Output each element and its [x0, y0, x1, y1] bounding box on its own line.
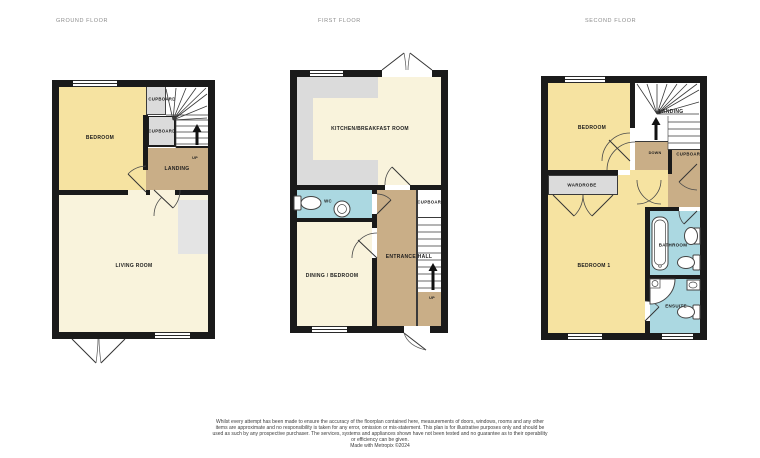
wall	[700, 76, 707, 340]
wall	[52, 332, 215, 339]
ground-floor-title: GROUND FLOOR	[56, 18, 108, 24]
wall	[175, 190, 208, 195]
wall	[645, 275, 700, 279]
wall	[208, 80, 215, 339]
wall	[297, 218, 372, 222]
ground-up-label: UP	[192, 156, 198, 160]
window	[565, 76, 605, 83]
second-stairs-treads	[668, 83, 700, 150]
second-floor-title: SECOND FLOOR	[585, 18, 636, 24]
wall	[372, 214, 377, 228]
french-doors	[72, 339, 125, 363]
entrance-door	[404, 333, 426, 350]
second-down-area	[635, 142, 668, 170]
first-floor-title: FIRST FLOOR	[318, 18, 361, 24]
wall	[143, 115, 148, 170]
second-cupboard-label: CUPBOARD	[676, 152, 703, 157]
door-opening	[382, 70, 432, 77]
wall	[290, 185, 385, 190]
second-down-label: DOWN	[649, 151, 662, 155]
wall	[635, 141, 668, 142]
wall	[668, 150, 672, 174]
wall	[541, 170, 618, 175]
ground-cupboard-top-label: CUPBOARD	[148, 97, 175, 102]
ground-living-void	[178, 200, 208, 254]
window	[310, 70, 343, 77]
wall	[630, 83, 635, 128]
ground-stairs-treads	[176, 115, 208, 148]
first-up-label: UP	[429, 296, 435, 300]
window	[155, 332, 190, 339]
door-opening	[404, 326, 430, 333]
second-wardrobe-label: WARDROBE	[567, 183, 596, 188]
second-floor-plan: BEDROOM LANDING DOWN CUPBOARD WARDROBE B…	[541, 76, 707, 340]
wall	[52, 80, 59, 339]
ground-floor-plan: BEDROOM CUPBOARD CUPBOARD LANDING LIVING…	[52, 80, 215, 339]
first-wc-label: WC	[324, 199, 332, 204]
first-floor-plan: KITCHEN/BREAKFAST ROOM WC DINING / BEDRO…	[290, 70, 448, 333]
disclaimer-text: Whilst every attempt has been made to en…	[212, 419, 547, 443]
window	[662, 333, 693, 340]
wall	[290, 70, 297, 333]
footer-disclaimer: Whilst every attempt has been made to en…	[210, 419, 550, 449]
window	[73, 80, 117, 87]
wall	[146, 190, 150, 195]
first-dining-label: DINING / BEDROOM	[306, 273, 359, 279]
second-bedroom-label: BEDROOM	[578, 125, 606, 131]
second-cupboard-room	[668, 150, 700, 207]
wall	[668, 149, 700, 150]
second-ensuite-label: ENSUITE	[665, 304, 687, 309]
french-doors	[382, 53, 432, 70]
ground-living-label: LIVING ROOM	[116, 263, 153, 269]
first-cupboard-label: CUPBOARD	[417, 200, 444, 205]
wall	[146, 87, 147, 115]
wall	[372, 258, 377, 326]
ground-bedroom-label: BEDROOM	[86, 135, 114, 141]
ground-landing-label: LANDING	[165, 166, 190, 172]
second-bedroom1-room	[548, 175, 645, 333]
second-bathroom-label: BATHROOM	[659, 243, 688, 248]
first-kitchen-label: KITCHEN/BREAKFAST ROOM	[331, 126, 409, 132]
second-landing-label: LANDING	[659, 109, 684, 115]
window	[312, 326, 347, 333]
wall	[645, 207, 679, 211]
wall	[417, 217, 441, 218]
wall	[52, 190, 128, 195]
window	[568, 333, 602, 340]
first-wc-room	[297, 190, 372, 218]
first-hall-label: ENTRANCE HALL	[386, 254, 432, 260]
wall	[372, 190, 377, 194]
second-bedroom1-label: BEDROOM 1	[578, 263, 611, 269]
floorplan-page: GROUND FLOOR FIRST FLOOR SECOND FLOOR	[0, 0, 760, 458]
wall	[645, 321, 650, 333]
wall	[541, 76, 548, 340]
wall	[645, 211, 650, 301]
credit-text: Made with Metropix ©2024	[210, 443, 550, 449]
wall	[176, 146, 208, 148]
ground-cupboard-mid-label: CUPBOARD	[148, 129, 175, 134]
